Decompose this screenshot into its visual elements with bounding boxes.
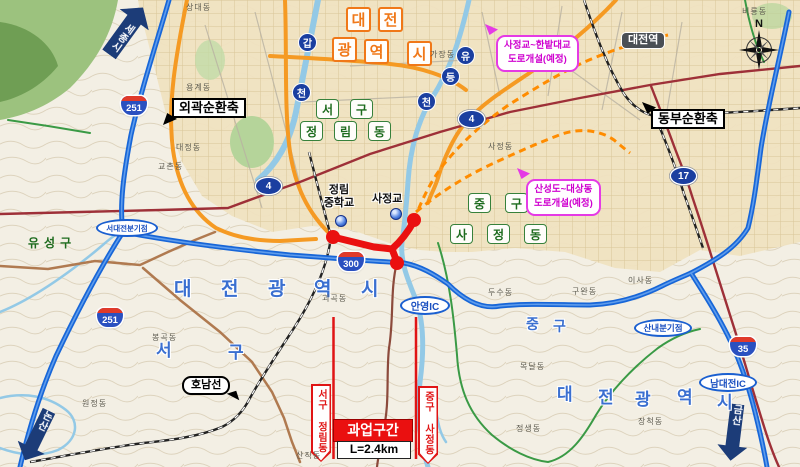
river-label-yudeungcheon: 유: [456, 46, 475, 65]
planned-road-a-line2: 도로개설(예정): [504, 53, 571, 67]
city-name-blue-char: 대: [557, 380, 573, 405]
district-box-jeongnim-dong: 정: [300, 121, 323, 141]
city-name-orange-char: 광: [332, 37, 357, 62]
town-label: 이사동: [628, 275, 653, 286]
project-section-length: L=2.4km: [337, 441, 411, 459]
poi-marker-bridge: [390, 208, 402, 220]
poi-sajeong-bridge: 사정교: [372, 193, 402, 206]
project-endpoint-west: [326, 230, 340, 244]
city-name-orange-char: 시: [407, 41, 432, 66]
shield-red-band: [121, 96, 147, 101]
map-screenshot: N 세종시 논산 금산 외곽순환축 동부순환축 대 전 광 역 시 갑 천 유 …: [0, 0, 800, 467]
district-blue-jung-gu: 중: [526, 314, 539, 334]
town-label: 상대동: [186, 2, 211, 13]
project-boundary-ribbon-right: 중구 사정동: [418, 386, 438, 464]
town-label: 원정동: [82, 398, 107, 409]
poi-jeongnim-middle-school: 정림 중학교: [316, 184, 362, 209]
project-endpoint-south: [390, 256, 404, 270]
project-endpoint-north: [407, 213, 421, 227]
town-label: 목달동: [520, 361, 545, 372]
expressway-shield-300: 300: [338, 252, 364, 271]
planned-road-a-line1: 사정교~한밭대교: [504, 39, 571, 53]
poi-marker-school: [335, 215, 347, 227]
district-label-yuseong-gu: 유성구: [28, 234, 76, 251]
town-label: 구완동: [572, 286, 597, 297]
daejeon-station-label: 대전역: [622, 33, 664, 48]
east-ring-axis-label: 동부순환축: [651, 109, 725, 129]
city-name-orange-char: 역: [364, 39, 389, 64]
town-label: 교촌동: [158, 161, 183, 172]
city-name-orange-char: 대: [346, 7, 371, 32]
city-name-blue-char: 광: [268, 274, 285, 301]
town-label: 대정동: [176, 142, 201, 153]
national-route-shield-4: 4: [256, 178, 281, 194]
city-name-orange-char: 전: [378, 7, 403, 32]
planned-road-b-line1: 산성도~대상동: [534, 183, 593, 197]
town-label: 괴곡동: [322, 293, 347, 304]
planned-road-b-line2: 도로개설(예정): [534, 197, 593, 211]
expressway-shield-251: 251: [97, 308, 123, 327]
river-label-yudeungcheon: 등: [441, 67, 460, 86]
town-label: 봉곡동: [152, 332, 177, 343]
junction-label-sannae: 산내분기점: [634, 319, 692, 337]
district-box-seo-gu: 서: [316, 99, 339, 119]
shield-red-band: [730, 337, 756, 342]
district-box-jung-gu: 구: [505, 193, 528, 213]
river-label-yudeungcheon: 천: [417, 92, 436, 111]
town-label: 용계동: [186, 82, 211, 93]
project-section-title: 과업구간: [334, 420, 412, 441]
town-label: 가장동: [430, 49, 455, 60]
district-blue-seo-gu: 구: [228, 338, 244, 363]
district-blue-jung-gu: 구: [553, 316, 566, 336]
town-label: 비룡동: [742, 6, 767, 17]
district-box-jung-gu: 중: [468, 193, 491, 213]
railway-honam-label: 호남선: [182, 376, 230, 395]
planned-road-callout-a: 사정교~한밭대교 도로개설(예정): [496, 35, 579, 72]
expressway-shield-251: 251: [121, 96, 147, 115]
city-name-blue-char: 전: [598, 383, 614, 408]
expressway-shield-35: 35: [730, 337, 756, 356]
town-label: 사정동: [488, 141, 513, 152]
city-name-blue-char: 대: [174, 274, 191, 301]
junction-label-seodaejeon: 서대전분기점: [96, 219, 158, 237]
district-box-sajeong-dong: 정: [487, 224, 510, 244]
city-name-blue-char: 전: [221, 274, 238, 301]
town-label: 정생동: [516, 423, 541, 434]
outer-ring-axis-label: 외곽순환축: [172, 98, 246, 118]
national-route-shield-4: 4: [459, 111, 484, 127]
svg-text:N: N: [755, 18, 763, 30]
shield-red-band: [338, 252, 364, 257]
city-name-blue-char: 역: [677, 383, 693, 408]
district-box-sajeong-dong: 사: [450, 224, 473, 244]
district-box-seo-gu: 구: [350, 99, 373, 119]
district-box-jeongnim-dong: 동: [368, 121, 391, 141]
town-label: 장척동: [638, 416, 663, 427]
planned-road-callout-b: 산성도~대상동 도로개설(예정): [526, 179, 601, 216]
town-label: 두수동: [488, 287, 513, 298]
national-route-shield-17: 17: [671, 168, 696, 184]
district-box-sajeong-dong: 동: [524, 224, 547, 244]
city-name-blue-char: 시: [717, 388, 733, 413]
city-name-blue-char: 시: [361, 274, 378, 301]
ic-label-anyeong: 안영IC: [400, 296, 450, 315]
town-label: 산직동: [296, 450, 321, 461]
compass-rose-icon: N: [735, 16, 783, 72]
river-label-gapcheon: 갑: [298, 33, 317, 52]
river-label-gapcheon: 천: [292, 83, 311, 102]
shield-red-band: [97, 308, 123, 313]
city-name-blue-char: 광: [635, 385, 651, 410]
district-box-jeongnim-dong: 림: [334, 121, 357, 141]
